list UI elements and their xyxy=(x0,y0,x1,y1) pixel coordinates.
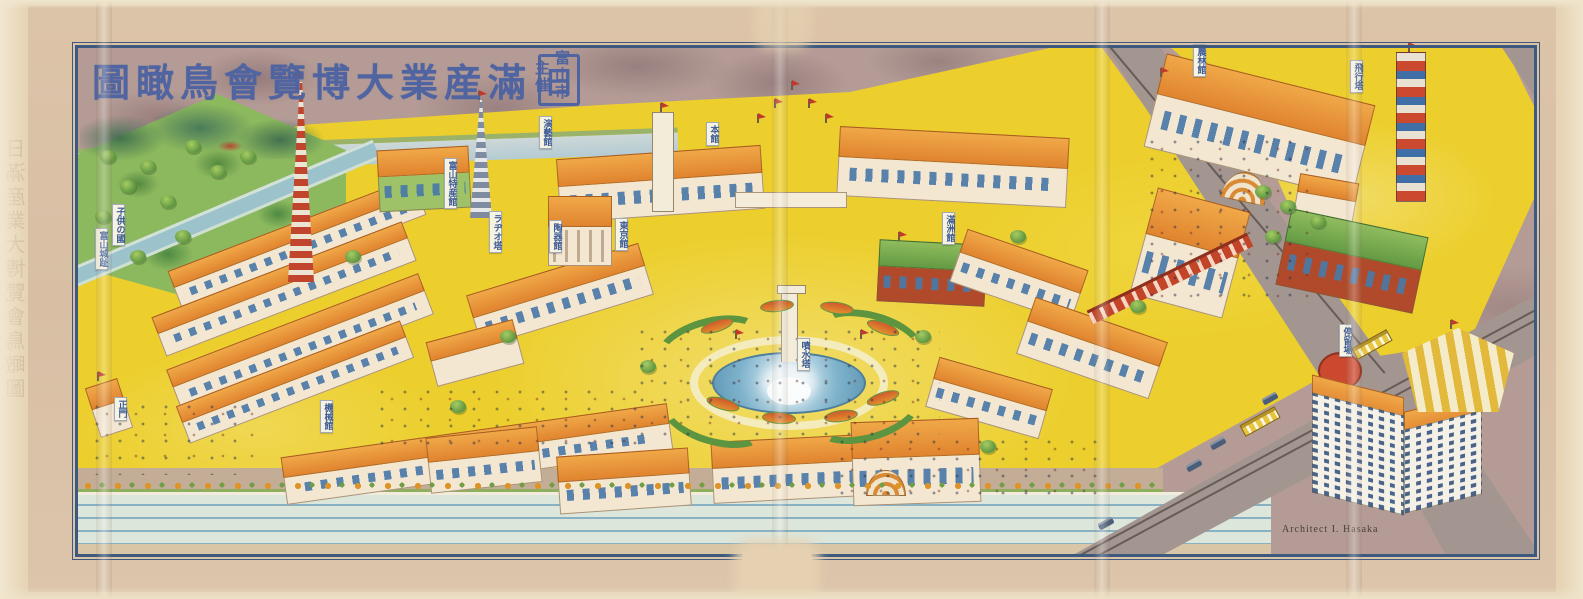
flag xyxy=(791,81,793,90)
pavilion-label: 子供の國 xyxy=(112,204,125,246)
flag xyxy=(898,232,900,241)
obelisk-monument xyxy=(652,112,674,212)
margin-ghost-text: 日滿産業大博覽會鳥瞰圖 xyxy=(2,138,31,402)
flag xyxy=(825,114,827,123)
building-main-hall-east xyxy=(836,126,1069,208)
architect-signature: Architect I. Hasaka xyxy=(1282,524,1378,535)
flag xyxy=(1408,43,1410,52)
expo-map-scene: 子供の國富山城趾富山特産館ラヂオ塔演藝館本館陶器館東京館滿洲館噴水塔機械館正門農… xyxy=(0,0,1583,599)
flag xyxy=(1160,68,1162,77)
pavilion-label: 富山城趾 xyxy=(95,228,108,270)
tree xyxy=(1310,215,1326,228)
tree xyxy=(1010,230,1026,243)
flag xyxy=(860,330,862,339)
tree xyxy=(95,210,111,223)
map-title-text: 圖瞰鳥會覽博大業産滿 xyxy=(92,52,532,107)
pavilion-label: 東京館 xyxy=(615,218,628,251)
pavilion-label: 農林館 xyxy=(1193,44,1206,77)
tree xyxy=(140,160,156,173)
organizer-line-2: 主催 xyxy=(532,60,553,94)
tree xyxy=(1130,300,1146,313)
flag xyxy=(660,103,662,112)
flag xyxy=(774,99,776,108)
flag xyxy=(97,372,99,381)
tree xyxy=(210,165,226,178)
pavilion-label: 演藝館 xyxy=(539,116,552,149)
pavilion-label: 停留場 xyxy=(1339,324,1352,357)
map-title: 圖瞰鳥會覽博大業産滿 日 xyxy=(92,52,580,107)
flag xyxy=(757,114,759,123)
fold-damage-patch xyxy=(762,0,804,42)
pavilion-label: 滿洲館 xyxy=(942,212,955,245)
flight-tower xyxy=(1396,52,1426,202)
flag xyxy=(808,99,810,108)
crowd xyxy=(640,330,940,440)
pavilion-label: 機械館 xyxy=(320,400,333,433)
tree xyxy=(120,180,136,193)
crowd xyxy=(840,440,1100,495)
grand-gate-base xyxy=(735,192,847,208)
fold-damage-patch xyxy=(742,548,812,599)
tree xyxy=(160,195,176,208)
pavilion-label: 噴水塔 xyxy=(797,338,810,371)
tree xyxy=(240,150,256,163)
flag xyxy=(735,330,737,339)
flag xyxy=(1450,320,1452,329)
tree xyxy=(130,250,146,263)
pavilion-label: ラヂオ塔 xyxy=(489,211,502,253)
organizer-line-1: 富山市 xyxy=(552,50,573,101)
pavilion-label: 飛行塔 xyxy=(1350,60,1363,93)
tree xyxy=(345,250,361,263)
tree xyxy=(500,330,516,343)
pavilion-label: 富山特産館 xyxy=(444,158,457,209)
tree xyxy=(175,230,191,243)
tree xyxy=(100,150,116,163)
crowd xyxy=(380,390,640,450)
tree xyxy=(185,140,201,153)
pavilion-label: 本館 xyxy=(706,122,719,146)
office-facade xyxy=(1404,410,1482,513)
crowd xyxy=(1150,140,1310,310)
pavilion-label: 陶器館 xyxy=(549,220,562,253)
pavilion-label: 正門 xyxy=(114,397,127,421)
